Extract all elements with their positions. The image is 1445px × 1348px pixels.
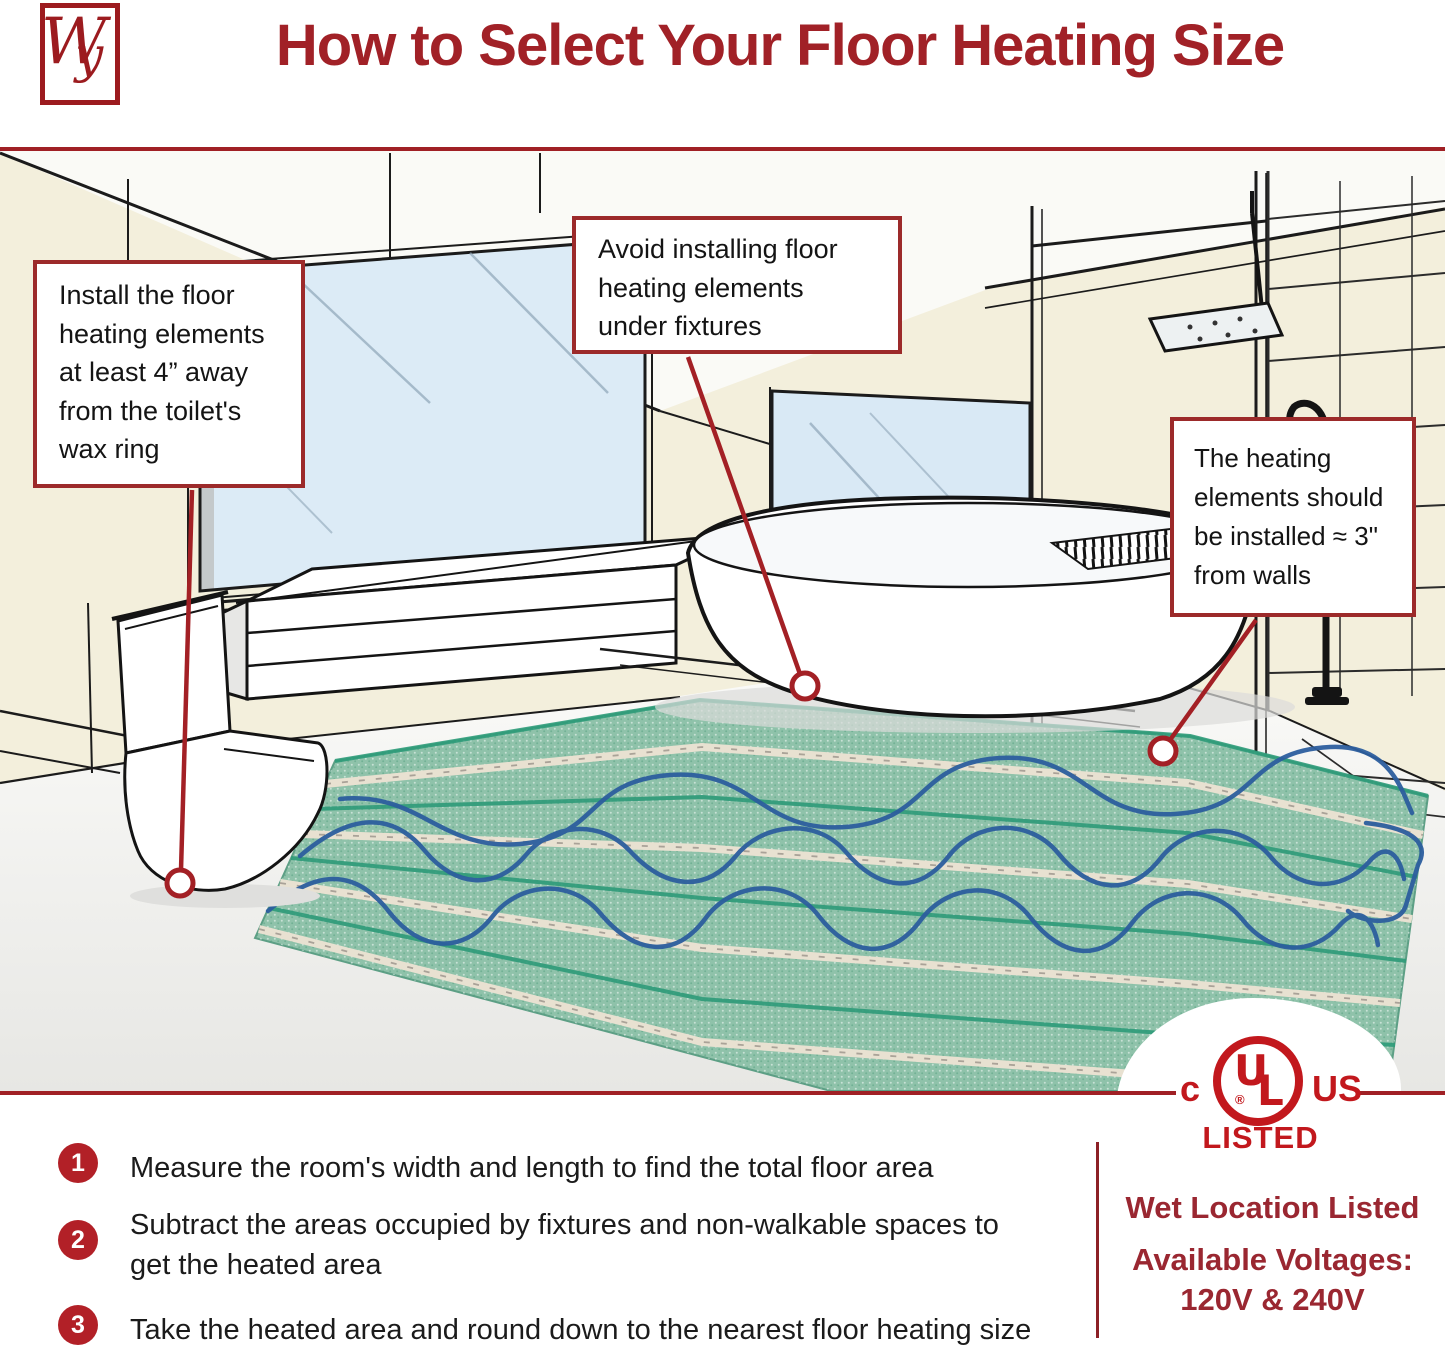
footer-divider (1096, 1142, 1099, 1338)
bottom-divider-rule-left (0, 1091, 1176, 1095)
step-1-badge: 1 (58, 1143, 98, 1183)
callout-toilet-clearance: Install the floor heating elements at le… (33, 260, 305, 488)
ul-logo: U L ® (1213, 1036, 1303, 1126)
marker-bathtub (792, 673, 818, 699)
callout-avoid-fixtures: Avoid installing floor heating elements … (572, 216, 902, 354)
marker-toilet (167, 870, 193, 896)
brand-logo-letter-y: y (75, 30, 103, 80)
step-3-number: 3 (71, 1311, 85, 1340)
wet-location-label: Wet Location Listed (1100, 1190, 1445, 1226)
ul-canada-mark: c (1180, 1068, 1200, 1110)
step-2-badge: 2 (58, 1220, 98, 1260)
step-1-number: 1 (71, 1149, 85, 1178)
step-3-badge: 3 (58, 1305, 98, 1345)
voltages-label: Available Voltages: (1100, 1242, 1445, 1278)
voltages-value: 120V & 240V (1100, 1282, 1445, 1318)
ul-listed-label: LISTED (1168, 1120, 1353, 1156)
ul-letter-l: L (1257, 1066, 1284, 1115)
step-3-text: Take the heated area and round down to t… (130, 1310, 1130, 1348)
marker-mat-edge (1150, 738, 1176, 764)
brand-logo: W y (40, 3, 120, 105)
page-title: How to Select Your Floor Heating Size (150, 12, 1410, 79)
registered-trademark-icon: ® (1235, 1092, 1245, 1107)
ul-us-mark: US (1312, 1068, 1362, 1110)
step-2-number: 2 (71, 1226, 85, 1255)
infographic-canvas: W y How to Select Your Floor Heating Siz… (0, 0, 1445, 1348)
bottom-divider-rule-right (1357, 1091, 1445, 1095)
certification-details: Wet Location Listed Available Voltages: … (1100, 1190, 1445, 1318)
step-2-text: Subtract the areas occupied by fixtures … (130, 1205, 1070, 1285)
callout-wall-clearance: The heating elements should be installed… (1170, 417, 1416, 617)
step-1-text: Measure the room's width and length to f… (130, 1148, 1090, 1188)
